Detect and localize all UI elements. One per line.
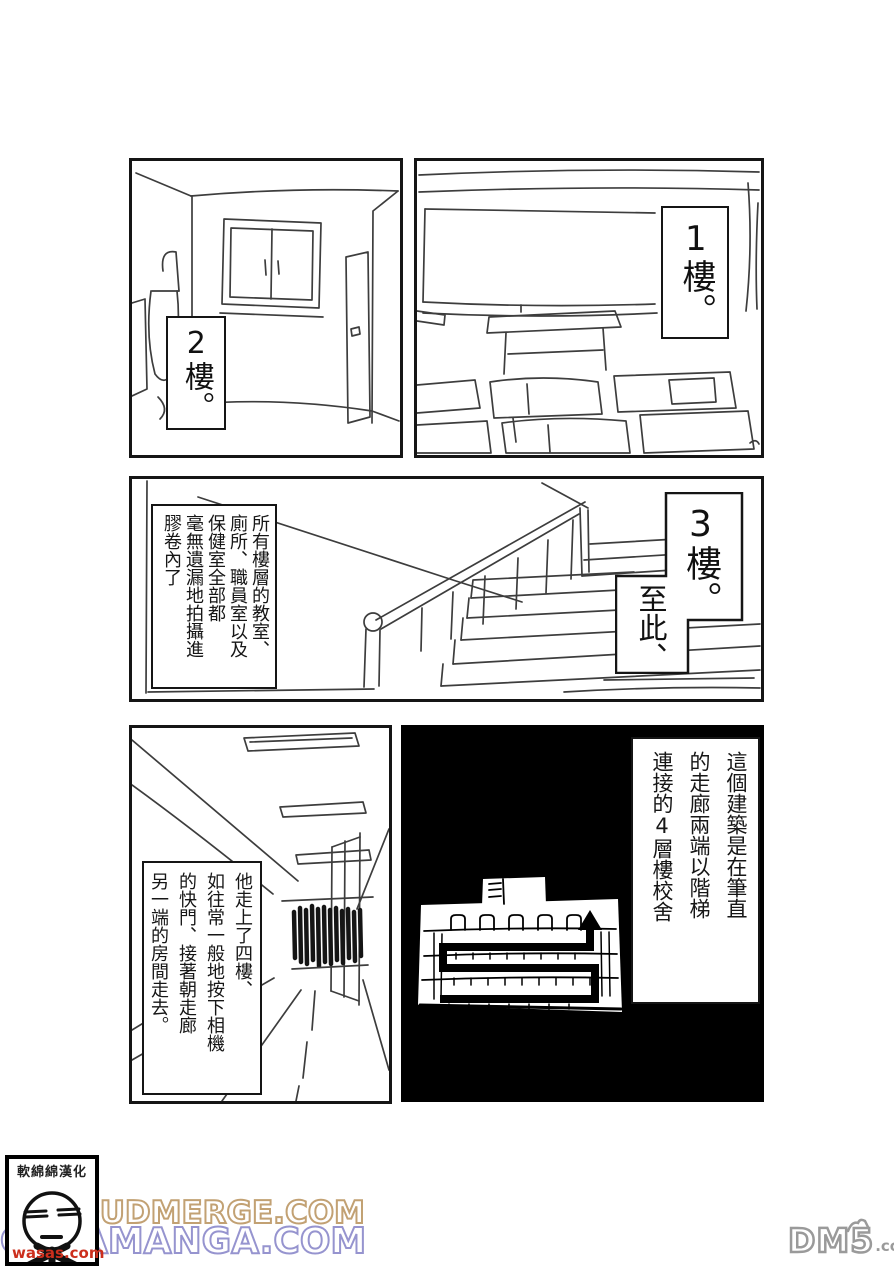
floor-map-caption: 這個建築是在筆直 的走廊兩端以階梯 連接的4層樓校舍 <box>631 737 760 1004</box>
caption-column: 如往常一般地按下相機 <box>200 872 228 1084</box>
caption-column: 另一端的房間走去。 <box>144 872 172 1084</box>
caption-column: 連接的4層樓校舍 <box>643 751 680 990</box>
floor-label-1f: 1樓。 <box>661 206 729 339</box>
floor-label-until-text: 至此、 <box>636 584 665 671</box>
caption-column: 膠卷內了 <box>160 514 182 679</box>
caption-column: 保健室全部都 <box>204 514 226 679</box>
site-logo-suffix: .com <box>875 1236 894 1257</box>
caption-column: 他走上了四樓、 <box>228 872 256 1084</box>
floor-label-2f: 2樓。 <box>166 316 226 430</box>
caption-column: 毫無遺漏地拍攝進 <box>182 514 204 679</box>
caption-column: 這個建築是在筆直 <box>717 751 754 990</box>
caption-column: 廁所、職員室以及 <box>226 514 248 679</box>
caption-column: 的走廊兩端以階梯 <box>680 751 717 990</box>
corridor-caption: 他走上了四樓、 如往常一般地按下相機 的快門、接著朝走廊 另一端的房間走去。 <box>142 861 262 1095</box>
caption-column: 所有樓層的教室、 <box>248 514 270 679</box>
floor-label-3f-text: 3樓。 <box>682 504 718 617</box>
caption-column: 的快門、接著朝走廊 <box>172 872 200 1084</box>
dm5-mascot-icon <box>846 1217 870 1233</box>
floor-label-1f-text: 1樓。 <box>677 219 713 327</box>
stairs-caption: 所有樓層的教室、 廁所、職員室以及 保健室全部都 毫無遺漏地拍攝進 膠卷內了 <box>151 504 277 689</box>
watermark-small-red: wasas.com <box>12 1244 104 1262</box>
manga-page: 2樓。 <box>0 0 894 1266</box>
floor-label-3f-group: 3樓。 至此、 <box>615 492 744 674</box>
floor-label-2f-text: 2樓。 <box>180 326 212 421</box>
scanlation-logo-text: 軟綿綿漢化 <box>9 1161 95 1180</box>
site-logo-dm5: DM5 .com <box>788 1224 894 1257</box>
